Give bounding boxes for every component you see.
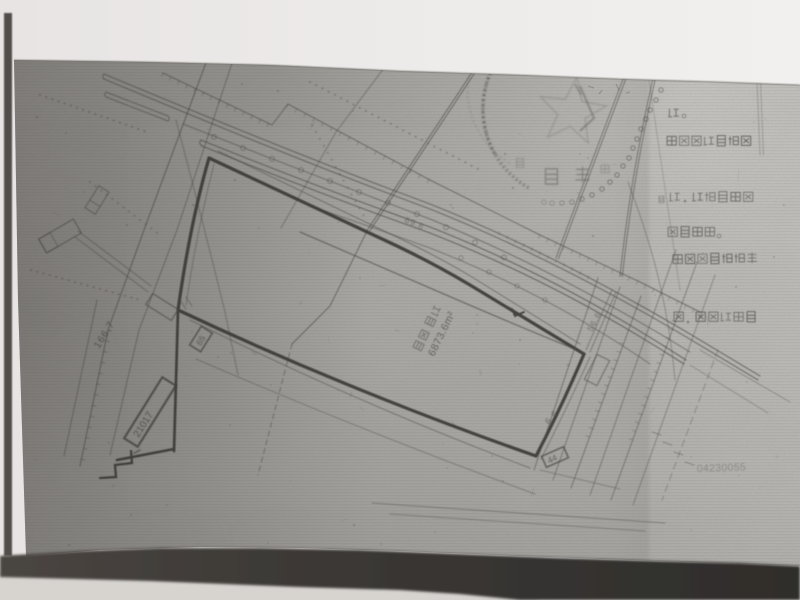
svg-text:04230055: 04230055 xyxy=(697,461,747,475)
